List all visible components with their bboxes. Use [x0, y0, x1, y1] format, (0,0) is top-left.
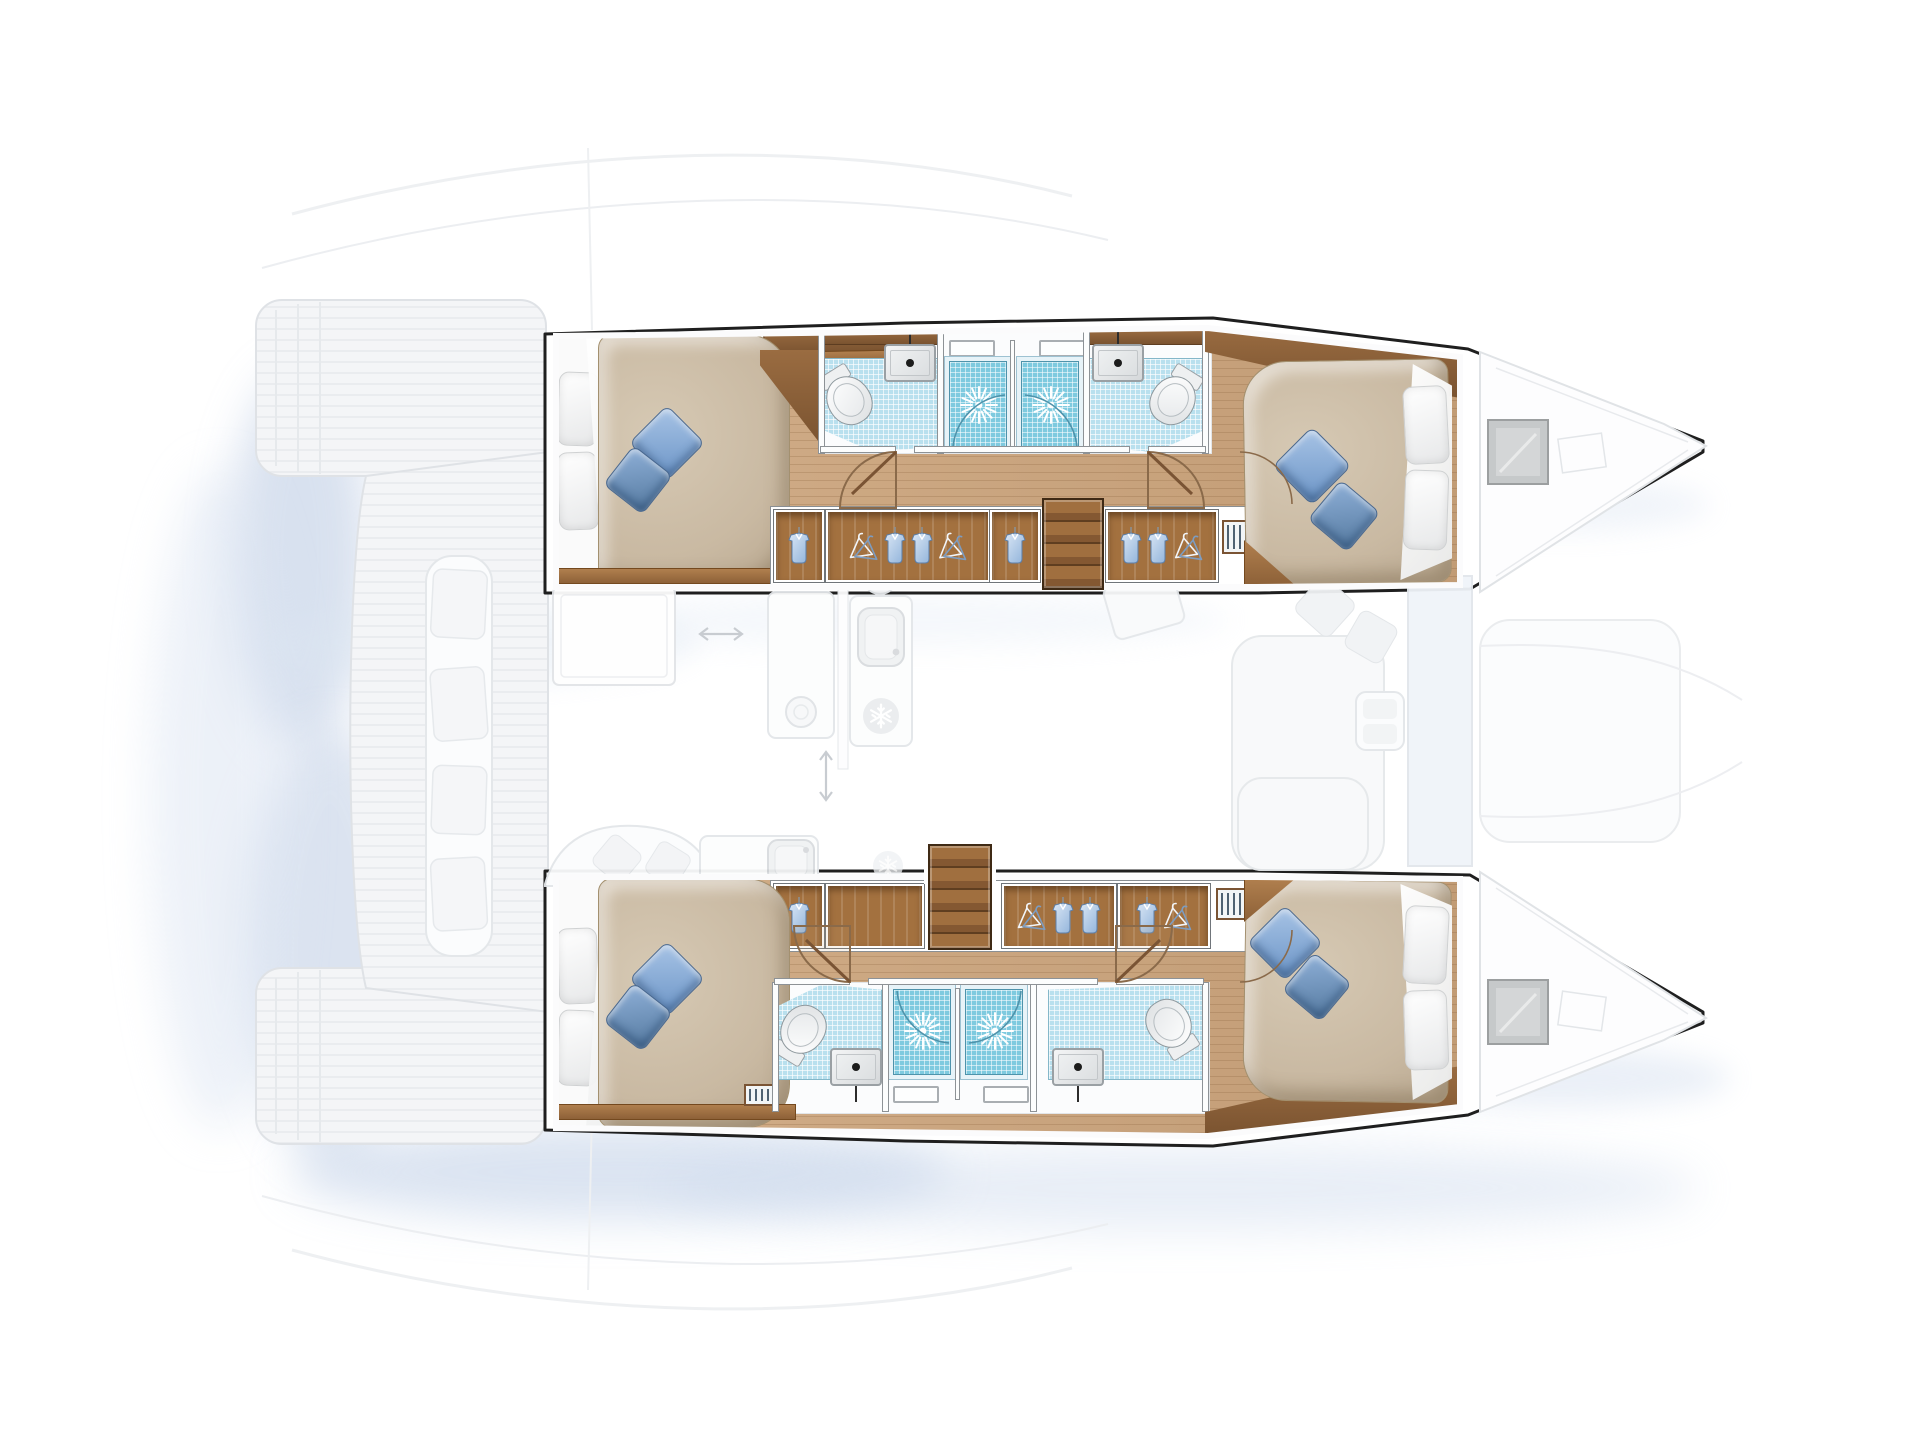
washbasin-icon [1052, 1048, 1104, 1086]
floor-plan-canvas [0, 0, 1920, 1440]
pillow [1402, 385, 1450, 465]
pillow [557, 927, 600, 1004]
hull-shell-layer [0, 0, 1920, 1440]
partition-wall [937, 326, 944, 454]
stowage-cabinet [828, 886, 922, 946]
bow-deck-lower [1480, 872, 1706, 1112]
hanging-locker [1108, 512, 1216, 580]
hangers-icon [936, 531, 970, 561]
hanging-locker [992, 512, 1038, 580]
mirror-panel [1039, 340, 1085, 357]
shower-stall [960, 984, 1028, 1080]
saloon-front-window [1408, 576, 1472, 866]
hangers-icon [1172, 531, 1206, 561]
washbasin-icon [1092, 344, 1144, 382]
pillow [1403, 469, 1450, 550]
hanging-locker [776, 512, 822, 580]
hangers-icon [847, 531, 881, 561]
mirror-panel [983, 1086, 1029, 1103]
shirt-icon [909, 526, 935, 566]
shirt-icon [1145, 526, 1171, 566]
bow-deck-upper [1480, 352, 1706, 592]
partition-wall [772, 982, 779, 1112]
partition-wall [818, 326, 825, 454]
faucet-stem [1077, 1086, 1079, 1102]
partition-wall [882, 982, 889, 1112]
partition-wall [1030, 982, 1037, 1112]
mirror-panel [949, 340, 995, 357]
bathroom-shelf [1088, 330, 1206, 345]
cockpit-table [553, 587, 675, 685]
shower-door-arc [889, 985, 957, 1081]
bed-foot-trim [556, 568, 796, 584]
pillow [557, 451, 600, 530]
stove-icon [786, 697, 816, 727]
shower-stall [888, 984, 956, 1080]
shower-door-arc [945, 357, 1013, 453]
shirt-icon [1118, 526, 1144, 566]
shower-divider [1010, 340, 1015, 452]
corridor-wall [1116, 978, 1204, 985]
shower-door-arc [961, 985, 1029, 1081]
washbasin-icon [884, 344, 936, 382]
faucet-stem [855, 1086, 857, 1102]
shower-divider [955, 988, 960, 1100]
shirt-icon [1050, 896, 1076, 936]
corridor-wall [914, 446, 1130, 453]
shower-stall [1016, 356, 1084, 452]
shower-stall [944, 356, 1012, 452]
pillow [1403, 989, 1450, 1070]
forward-cockpit [1480, 620, 1680, 842]
vent-louver-icon [744, 1084, 774, 1106]
corridor-wall [868, 978, 1098, 985]
shirt-icon [1077, 896, 1103, 936]
corridor-wall [774, 978, 850, 985]
pillow [1402, 905, 1450, 985]
hangers-icon [1161, 901, 1195, 931]
partition-wall [1202, 982, 1209, 1112]
hanging-locker [828, 512, 988, 580]
companionway-steps [1042, 498, 1104, 590]
corridor-wall [1148, 446, 1206, 453]
washbasin-icon [830, 1048, 882, 1086]
shower-door-arc [1017, 357, 1085, 453]
shirt-icon [786, 526, 812, 566]
saloon-ghost [545, 560, 1742, 889]
hangers-icon [1015, 901, 1049, 931]
corridor-wall [820, 446, 896, 453]
companionway-steps [928, 844, 992, 950]
shirt-icon [1134, 896, 1160, 936]
hanging-locker [1120, 886, 1208, 946]
mirror-panel [893, 1086, 939, 1103]
partition-wall [1083, 326, 1090, 454]
shirt-icon [1002, 526, 1028, 566]
shirt-icon [882, 526, 908, 566]
bed-foot-trim [556, 1104, 796, 1120]
hanging-locker [1004, 886, 1114, 946]
